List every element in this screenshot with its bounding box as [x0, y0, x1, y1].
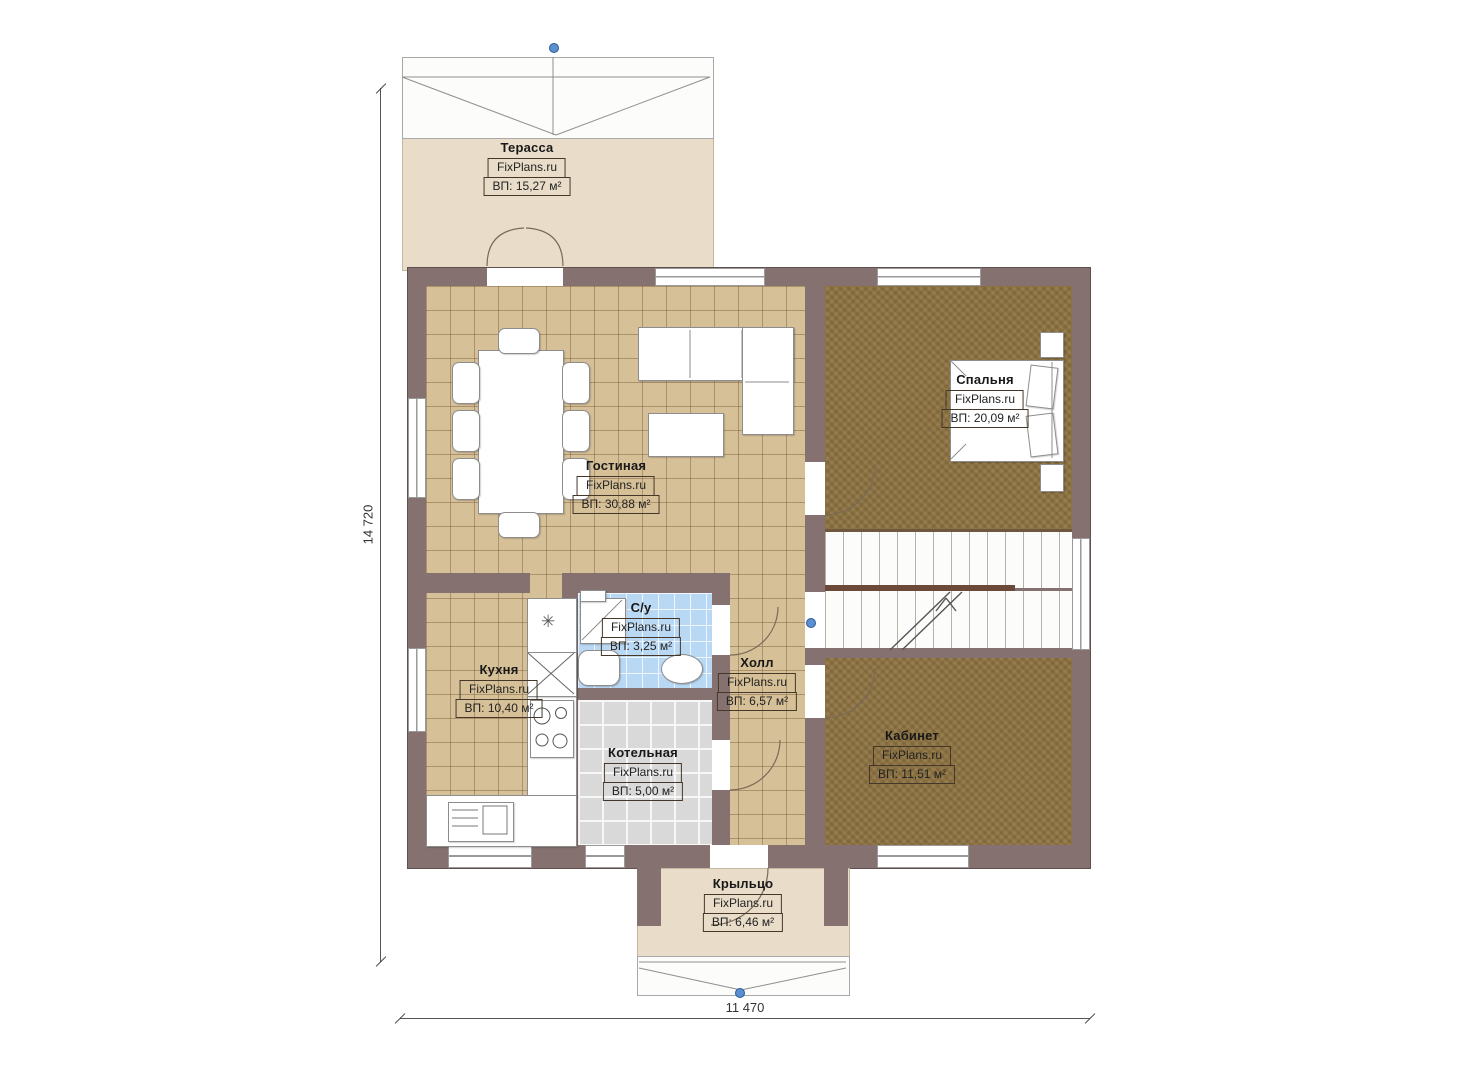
bedroom-door-opening — [805, 462, 825, 515]
stairs-handrail — [825, 585, 1015, 591]
boiler-door-opening — [712, 740, 730, 790]
horizontal-dimension-label: 11 470 — [715, 1000, 775, 1015]
boiler-bottom-window — [585, 845, 625, 868]
room-area: ВП: 6,46 м² — [703, 913, 783, 933]
room-brand: FixPlans.ru — [704, 894, 782, 914]
room-brand: FixPlans.ru — [460, 680, 538, 700]
room-area: ВП: 11,51 м² — [869, 765, 955, 785]
room-brand: FixPlans.ru — [488, 158, 566, 178]
room-area: ВП: 30,88 м² — [573, 495, 660, 515]
porch-pillar-left — [637, 868, 661, 926]
chair — [498, 328, 540, 354]
room-area: ВП: 3,25 м² — [601, 637, 681, 657]
pillow — [1026, 412, 1059, 457]
room-label-living: Гостиная FixPlans.ru ВП: 30,88 м² — [573, 458, 660, 514]
room-brand: FixPlans.ru — [577, 476, 655, 496]
vertical-dimension-line — [380, 88, 381, 962]
room-name: Спальня — [956, 372, 1014, 387]
room-name: Кабинет — [885, 728, 939, 743]
section-marker — [735, 988, 745, 998]
kitchen-sink-icon: ✳ — [541, 612, 555, 632]
room-label-bathroom: С/у FixPlans.ru ВП: 3,25 м² — [601, 600, 681, 656]
office-door-opening — [805, 665, 825, 718]
coffee-table — [648, 413, 724, 457]
pillow — [1026, 364, 1059, 409]
room-brand: FixPlans.ru — [604, 763, 682, 783]
room-label-bedroom: Спальня FixPlans.ru ВП: 20,09 м² — [942, 372, 1029, 428]
dimension-tick — [376, 956, 387, 967]
bathroom-sink — [661, 654, 703, 684]
chair — [498, 512, 540, 538]
room-area: ВП: 5,00 м² — [603, 782, 683, 802]
room-area: ВП: 10,40 м² — [456, 699, 543, 719]
room-name: С/у — [631, 600, 652, 615]
vertical-dimension-label: 14 720 — [361, 495, 376, 555]
room-brand: FixPlans.ru — [602, 618, 680, 638]
room-area: ВП: 15,27 м² — [484, 177, 571, 197]
room-area: ВП: 6,57 м² — [717, 692, 797, 712]
room-brand: FixPlans.ru — [946, 390, 1024, 410]
section-marker — [806, 618, 816, 628]
office-top-wall — [805, 648, 1072, 658]
terrace-door-opening — [487, 268, 563, 286]
room-label-kitchen: Кухня FixPlans.ru ВП: 10,40 м² — [456, 662, 543, 718]
room-name: Терасса — [501, 140, 554, 155]
living-top-window — [655, 268, 765, 286]
room-name: Кухня — [480, 662, 519, 677]
chair — [452, 410, 480, 452]
room-name: Гостиная — [586, 458, 646, 473]
room-label-terrace: Терасса FixPlans.ru ВП: 15,27 м² — [484, 140, 571, 196]
room-brand: FixPlans.ru — [718, 673, 796, 693]
horizontal-dimension-line — [400, 1018, 1090, 1019]
dimension-tick — [376, 83, 387, 94]
interior-wall — [805, 718, 825, 845]
dining-table — [478, 350, 564, 514]
interior-wall — [805, 286, 825, 462]
bedroom-stairs-divider — [825, 529, 1072, 532]
terrace-roof — [402, 57, 714, 139]
kitchen-bottom-window — [448, 845, 532, 868]
room-label-hall: Холл FixPlans.ru ВП: 6,57 м² — [717, 655, 797, 711]
living-kitchen-wall — [426, 573, 530, 593]
room-label-office: Кабинет FixPlans.ru ВП: 11,51 м² — [869, 728, 955, 784]
front-door-opening — [710, 845, 768, 868]
office-bottom-window — [877, 845, 969, 868]
floor-plan: ✳ — [0, 0, 1474, 1080]
kitchen-left-window — [408, 648, 426, 732]
room-name: Крыльцо — [713, 876, 774, 891]
section-marker — [549, 43, 559, 53]
stairs-upper-flight — [825, 532, 1072, 588]
room-label-porch: Крыльцо FixPlans.ru ВП: 6,46 м² — [703, 876, 783, 932]
kitchen-appliance — [448, 802, 514, 842]
bathroom-boiler-wall — [578, 688, 712, 700]
living-left-window — [408, 398, 426, 498]
chair — [562, 410, 590, 452]
room-label-boiler: Котельная FixPlans.ru ВП: 5,00 м² — [603, 745, 683, 801]
stairs-right-window — [1072, 538, 1090, 650]
interior-wall — [805, 515, 825, 592]
sofa-vertical-section — [742, 327, 794, 435]
nightstand — [1040, 332, 1064, 358]
room-name: Холл — [740, 655, 773, 670]
chair — [452, 458, 480, 500]
chair — [452, 362, 480, 404]
porch-pillar-right — [824, 868, 848, 926]
nightstand — [1040, 464, 1064, 492]
room-brand: FixPlans.ru — [873, 746, 951, 766]
stairs-lower-flight — [825, 591, 1072, 650]
room-area: ВП: 20,09 м² — [942, 409, 1029, 429]
room-name: Котельная — [608, 745, 678, 760]
bedroom-top-window — [877, 268, 981, 286]
bathroom-door-opening — [712, 605, 730, 655]
chair — [562, 362, 590, 404]
